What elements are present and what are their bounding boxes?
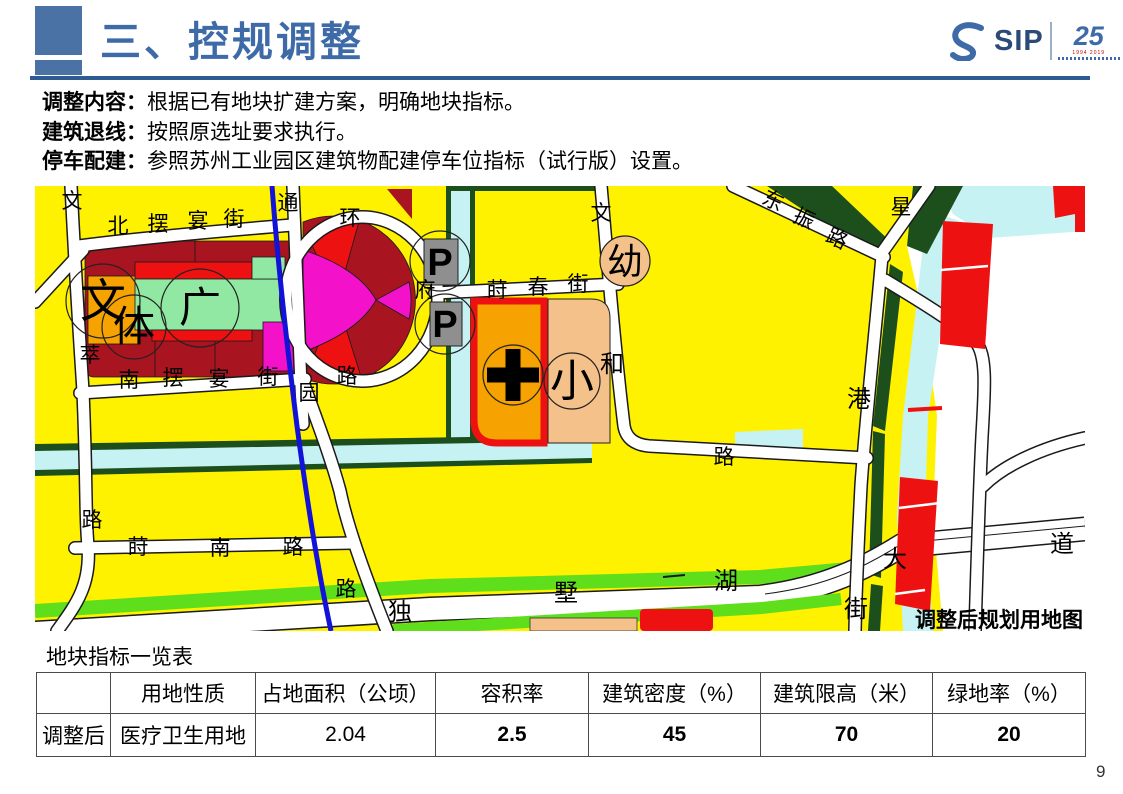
page-number: 9 (1096, 762, 1105, 782)
header-rule (30, 76, 1090, 80)
header-cell: 建筑限高（米） (761, 673, 933, 714)
page-title: 三、控规调整 (100, 8, 364, 68)
map-label: 湖 (714, 568, 738, 595)
map-block-bottom-peach (530, 618, 637, 631)
map-label: 文 (62, 190, 83, 213)
map-label: 道 (1050, 531, 1074, 558)
map-label: 路 (337, 365, 358, 388)
note-line: 调整内容：根据已有地块扩建方案，明确地块指标。 (42, 88, 693, 118)
anniversary-years: 1994 2019 (1072, 51, 1105, 56)
data-cell-highlight: 20 (933, 714, 1086, 757)
data-cell: 2.04 (256, 714, 436, 757)
map-label: 宴 (209, 368, 230, 391)
map-label: 街 (258, 366, 279, 389)
map-label: 街 (224, 208, 245, 231)
header-cell (37, 673, 111, 714)
map-block-bottom-red (640, 609, 713, 631)
table-title: 地块指标一览表 (46, 641, 193, 671)
map-facility-label: 幼 (607, 241, 643, 282)
note-line: 停车配建：参照苏州工业园区建筑物配建停车位指标（试行版）设置。 (42, 147, 693, 177)
row-label-cell: 调整后 (37, 714, 111, 757)
map-label: 和 (600, 351, 624, 378)
note-line: 建筑退线：按照原选址要求执行。 (42, 118, 693, 148)
map-caption: 调整后规划用地图 (915, 608, 1083, 631)
map-label: 路 (283, 536, 304, 559)
map-label: 南 (210, 537, 231, 560)
header-cell: 建筑密度（%） (589, 673, 761, 714)
anniversary-number: 25 (1074, 23, 1104, 50)
map-label: 墅 (554, 580, 578, 607)
map-label: 南 (119, 369, 140, 392)
map-label: 路 (336, 578, 357, 601)
map-label: 港 (847, 386, 871, 413)
map-label: 莳 (487, 279, 508, 302)
map-label: 路 (714, 446, 735, 469)
table-data-row: 调整后 医疗卫生用地 2.04 2.5 45 70 20 (37, 714, 1086, 757)
map-parking-label: P (427, 242, 452, 284)
anniversary-tagline-bar (1058, 57, 1120, 60)
map-label: 星 (891, 196, 912, 219)
map-label: 园 (299, 382, 320, 405)
sip-logo-text: SIP (994, 25, 1044, 58)
map-label: 宴 (188, 210, 209, 233)
map-label: 独 (388, 599, 412, 626)
planning-map: 文 北 摆 宴 街 通 环 府 莳 春 街 文 东 振 路 星 萃 南 摆 宴 … (35, 186, 1085, 631)
map-label: 环 (340, 207, 361, 230)
header-cell: 绿地率（%） (933, 673, 1086, 714)
map-facility-label: 小 (550, 357, 594, 406)
map-label: 萃 (80, 344, 101, 367)
data-cell-highlight: 2.5 (436, 714, 589, 757)
header-accent-square (35, 6, 82, 55)
map-label: 北 (108, 215, 129, 238)
map-label: 路 (82, 509, 103, 532)
slide: 三、控规调整 SIP 25 1994 2019 调整内容：根据已有地块扩建方案，… (0, 0, 1123, 794)
data-cell: 医疗卫生用地 (111, 714, 256, 757)
logo-divider (1050, 22, 1052, 60)
anniversary-mark: 25 1994 2019 (1058, 23, 1120, 60)
map-red-dash (908, 408, 942, 410)
header-cell: 用地性质 (111, 673, 256, 714)
notes-block: 调整内容：根据已有地块扩建方案，明确地块指标。 建筑退线：按照原选址要求执行。 … (42, 88, 693, 177)
map-label: 春 (528, 276, 549, 299)
map-facility-label: 体 (113, 303, 155, 350)
header-accent-bar (35, 60, 82, 75)
data-cell-highlight: 45 (589, 714, 761, 757)
map-facility-label: 广 (179, 284, 221, 331)
map-label: 通 (278, 192, 299, 215)
map-label: 街 (568, 273, 589, 296)
map-label: 莳 (128, 536, 149, 559)
map-label: 文 (591, 202, 612, 225)
header-cell: 容积率 (436, 673, 589, 714)
map-label: 街 (844, 596, 868, 623)
sip-swoosh-icon (948, 21, 988, 61)
map-label: 大 (883, 546, 907, 573)
table-header-row: 用地性质 占地面积（公顷） 容积率 建筑密度（%） 建筑限高（米） 绿地率（%） (37, 673, 1086, 714)
sip-logo: SIP 25 1994 2019 (948, 16, 1120, 66)
map-label: 摆 (163, 367, 184, 390)
indicator-table: 用地性质 占地面积（公顷） 容积率 建筑密度（%） 建筑限高（米） 绿地率（%）… (36, 672, 1086, 757)
map-label: 摆 (148, 213, 169, 236)
data-cell-highlight: 70 (761, 714, 933, 757)
header-cell: 占地面积（公顷） (256, 673, 436, 714)
map-parking-label: P (432, 304, 457, 346)
